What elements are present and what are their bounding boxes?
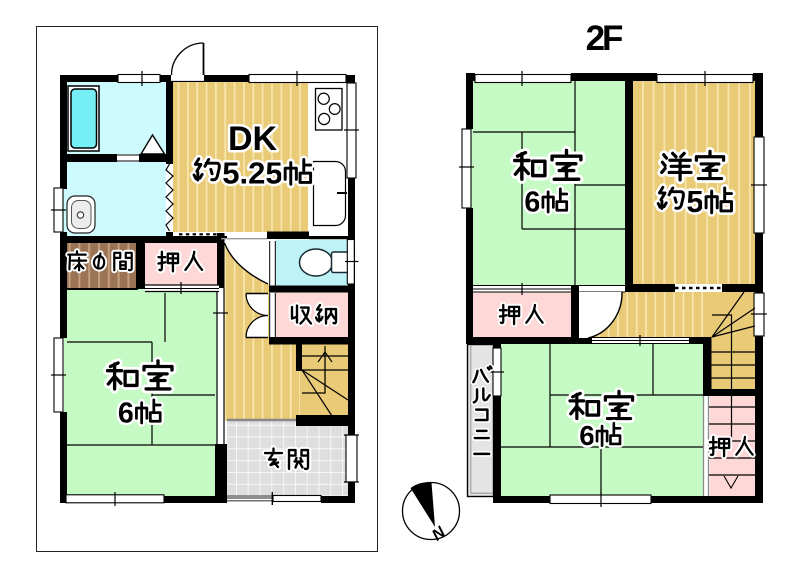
svg-text:DK: DK bbox=[228, 120, 278, 158]
svg-text:5: 5 bbox=[686, 184, 703, 219]
svg-text:6: 6 bbox=[579, 420, 595, 451]
svg-text:5.25: 5.25 bbox=[222, 156, 282, 191]
svg-text:6: 6 bbox=[118, 397, 134, 429]
svg-text:6: 6 bbox=[524, 186, 540, 218]
svg-text:2F: 2F bbox=[586, 19, 623, 58]
